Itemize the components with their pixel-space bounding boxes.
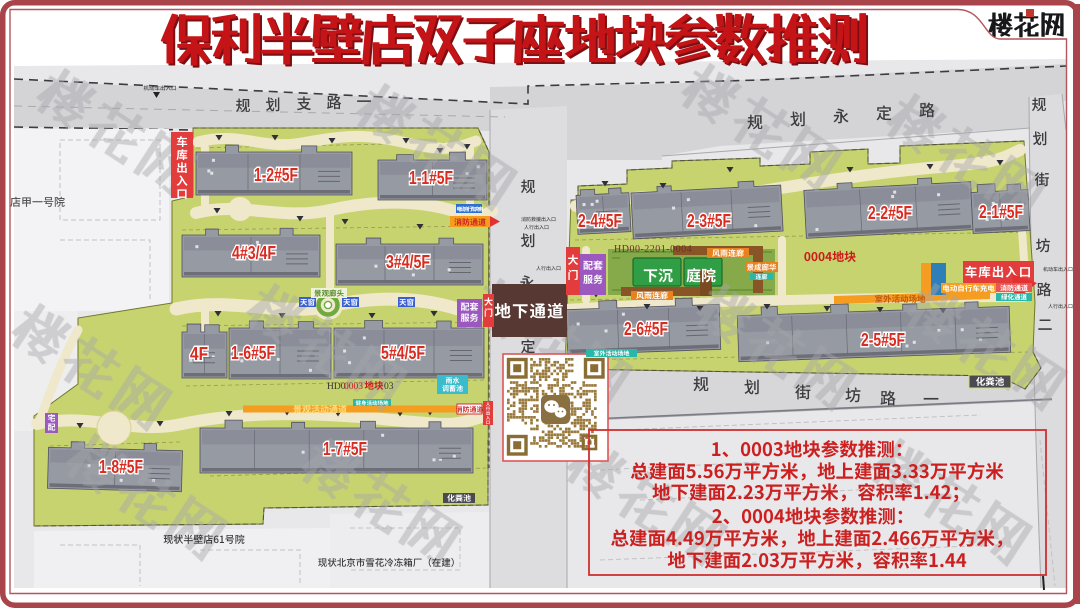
- svg-text:4F: 4F: [190, 344, 208, 364]
- svg-text:1-7#5F: 1-7#5F: [323, 439, 367, 459]
- svg-text:2-2#5F: 2-2#5F: [868, 203, 912, 223]
- svg-text:2-3#5F: 2-3#5F: [687, 211, 731, 231]
- svg-text:2-4#5F: 2-4#5F: [578, 211, 622, 231]
- svg-text:1-6#5F: 1-6#5F: [231, 343, 275, 363]
- svg-text:1-8#5F: 1-8#5F: [99, 457, 143, 477]
- svg-text:0003: 0003: [344, 382, 363, 392]
- svg-text:1-2#5F: 1-2#5F: [254, 165, 298, 185]
- svg-text:03: 03: [384, 382, 394, 392]
- svg-text:2-5#5F: 2-5#5F: [861, 330, 905, 350]
- svg-text:5#4/5F: 5#4/5F: [381, 343, 425, 363]
- svg-text:HD0: HD0: [327, 382, 346, 392]
- svg-text:HD00-2201-0004: HD00-2201-0004: [614, 244, 692, 255]
- svg-text:3#4/5F: 3#4/5F: [386, 252, 430, 272]
- svg-text:1-1#5F: 1-1#5F: [409, 168, 453, 188]
- svg-text:2-6#5F: 2-6#5F: [624, 319, 668, 339]
- svg-text:2-1#5F: 2-1#5F: [979, 202, 1023, 222]
- svg-text:4#3/4F: 4#3/4F: [232, 243, 276, 263]
